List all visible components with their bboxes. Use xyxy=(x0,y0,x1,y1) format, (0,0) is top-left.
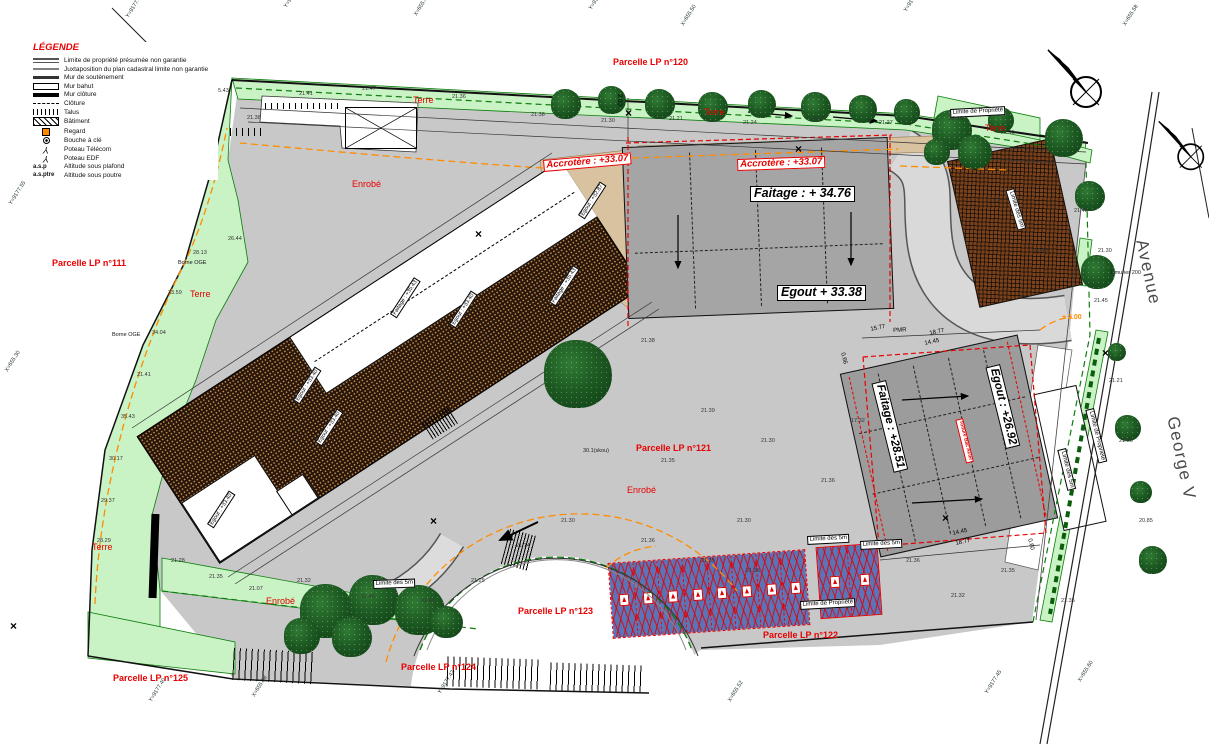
rooflbl-label: Faitage : +35.43 xyxy=(390,277,421,318)
coords-label: X=655.60 xyxy=(1077,660,1095,683)
elev-label: 21.36 xyxy=(906,558,920,564)
elev-label: 21.35 xyxy=(701,558,715,564)
elev-label: 22.15 xyxy=(1001,130,1015,136)
elev-label: 21.36 xyxy=(641,538,655,544)
elev-label: 21.25 xyxy=(471,578,485,584)
legend-label: Limite de propriété présumée non garanti… xyxy=(64,57,187,64)
redrot-label: Toiture Bac Acier xyxy=(956,418,974,463)
elev-label: 21.21 xyxy=(1109,378,1123,384)
rooflbl-label: Egout : +33.40 xyxy=(293,367,322,405)
legend-label: Mur clôture xyxy=(64,91,97,98)
rooflbl-label: Egout : +32.87 xyxy=(578,182,607,220)
elev-label: 29.37 xyxy=(101,498,115,504)
rooflbl-label: Egout : +33.40 xyxy=(449,291,478,329)
crosses-label: × xyxy=(942,512,949,525)
crosses-label: × xyxy=(10,620,17,633)
elev-label: 28.29 xyxy=(97,538,111,544)
elev-label: 21.41 xyxy=(299,91,313,97)
limites-label: Limite des 5m xyxy=(860,539,903,550)
acrotere-label: Accrotère : +33.07 xyxy=(543,152,632,172)
enrobe-label: Enrobé xyxy=(266,597,295,607)
coords-label: X=655.38 xyxy=(251,675,269,698)
coords-label: Y=9177.55 xyxy=(8,180,27,206)
coords-label: Y=9177.45 xyxy=(984,669,1003,695)
terre-label: Terre xyxy=(190,290,211,300)
legend-label: Mur de soutènement xyxy=(64,74,124,81)
regard-icon xyxy=(33,128,59,136)
parcels-label: Parcelle LP n°123 xyxy=(518,607,593,617)
mur-sout-icon xyxy=(33,76,59,79)
enrobe-label: Enrobé xyxy=(627,486,656,496)
elev-label: 21.40 xyxy=(361,594,375,600)
legend-item: Mur bahut xyxy=(33,83,218,90)
coords-label: Y=9177.66 xyxy=(125,0,144,19)
legend-items: Limite de propriété présumée non garanti… xyxy=(33,57,218,179)
elev-label: 21.07 xyxy=(249,586,263,592)
crosses-label: × xyxy=(795,143,802,156)
elev-label: 33.59 xyxy=(168,290,182,296)
elev-label: 21.45 xyxy=(1034,248,1048,254)
elev-label: 21.47 xyxy=(362,86,376,92)
altitudes-label: Faitage : + 34.76 xyxy=(750,186,855,202)
coords-label: X=655.50 xyxy=(680,4,698,27)
dims-label: PMR xyxy=(893,327,907,334)
elev-label: 21.38 xyxy=(531,112,545,118)
dims-label: 15.77 xyxy=(870,324,886,334)
elev-label: 21.27 xyxy=(879,120,893,126)
legend-label: Talus xyxy=(64,109,79,116)
elev-label: 21.35 xyxy=(1001,568,1015,574)
elev-label: 21.28 xyxy=(171,558,185,564)
dims-label: 0.66 xyxy=(839,352,848,365)
coords-label: X=655.42 xyxy=(413,0,431,17)
elev-label: 21.41 xyxy=(137,372,151,378)
coords-label: Y=9177.74 xyxy=(903,0,922,13)
elev-label: 21.36 xyxy=(746,568,760,574)
elev-label: 21.38 xyxy=(641,338,655,344)
mur-cloture-icon xyxy=(33,93,59,98)
enrobe-label: Enrobé xyxy=(352,180,381,190)
legend-item: Regard xyxy=(33,128,218,136)
legend-label: Mur bahut xyxy=(64,83,93,90)
elev-label: 21.14 xyxy=(516,543,530,549)
elev-label: 21.43 xyxy=(421,598,435,604)
coords-label: X=655.52 xyxy=(727,680,745,703)
batiment-icon xyxy=(33,117,59,126)
legend-label: Juxtaposition du plan cadastral limite n… xyxy=(64,66,208,73)
legend-item: Mur clôture xyxy=(33,91,218,98)
altitudes_rot-label: Faitage : +28.51 xyxy=(872,380,908,473)
legend-item: Talus xyxy=(33,109,218,116)
orangelbl-label: + 2.00 xyxy=(1062,314,1082,322)
dims-label: 0.60 xyxy=(1026,538,1035,551)
elev-label: 21.30 xyxy=(761,438,775,444)
limites-label: Limite de Propriété xyxy=(800,598,856,609)
legend-label: Poteau Télécom xyxy=(64,146,111,153)
altitudes_rot-label: Egout : +26.92 xyxy=(986,364,1021,449)
elev-label: 21.27 xyxy=(813,116,827,122)
elev-label: 21.35 xyxy=(1061,598,1075,604)
dims-label: 14.45 xyxy=(924,338,940,348)
elev-label: 21.30 xyxy=(601,118,615,124)
legend-label: Altitude sous poutre xyxy=(64,172,121,179)
elev-label: 21.35 xyxy=(661,458,675,464)
lim-prop-icon xyxy=(33,57,59,64)
tiny-label: 30.1(skou) xyxy=(583,448,609,454)
cloture-icon xyxy=(33,103,59,104)
terre-label: Terre xyxy=(413,96,434,106)
rooflbl-label: Egout : +33.40 xyxy=(207,491,236,529)
elev-label: 21.36 xyxy=(452,94,466,100)
coords-label: X=655.30 xyxy=(4,350,22,373)
legend-item: a.s.ptreAltitude sous poutre xyxy=(33,172,218,179)
poteau-icon: Y xyxy=(33,146,59,153)
coords-label: X=655.58 xyxy=(1122,4,1140,27)
legend-item: Juxtaposition du plan cadastral limite n… xyxy=(33,66,218,73)
legend-item: Bouche à clé xyxy=(33,137,218,144)
parcels-label: Parcelle LP n°122 xyxy=(763,631,838,641)
street-label: George V xyxy=(1163,415,1199,502)
coords-label: Y=9177.70 xyxy=(588,0,607,11)
coords-label: Y=9177.42 xyxy=(437,669,456,695)
elev-label: 30.17 xyxy=(109,456,123,462)
legend-abbrev: a.s.p xyxy=(33,164,59,170)
coords-label: Y=9177.68 xyxy=(283,0,302,9)
legend-label: Regard xyxy=(64,128,85,135)
elev-label: 26.44 xyxy=(228,236,242,242)
rooflbl-label: Faitage : +35.43 xyxy=(549,265,580,306)
legend-label: Poteau EDF xyxy=(64,155,99,162)
limites-label: Limite des 5m xyxy=(807,534,850,545)
legend: LÉGENDE Limite de propriété présumée non… xyxy=(33,42,218,180)
legend-label: Bâtiment xyxy=(64,118,90,125)
elev-label: 35.43 xyxy=(121,414,135,420)
mur-bahut-icon xyxy=(33,83,59,90)
elev-label: 21.32 xyxy=(951,593,965,599)
elev-label: 21.30 xyxy=(1119,438,1133,444)
elev-label: 21.48 xyxy=(1074,208,1088,214)
limites-label: Limite des 5m xyxy=(1006,188,1027,231)
dims-label: 2.00 xyxy=(615,94,622,106)
elev-label: 20.85 xyxy=(1139,518,1153,524)
elev-label: 21.21 xyxy=(669,116,683,122)
crosses-label: × xyxy=(1102,347,1109,360)
legend-item: Mur de soutènement xyxy=(33,74,218,81)
elev-label: 21.24 xyxy=(743,120,757,126)
legend-item: YPoteau EDF xyxy=(33,155,218,162)
parcels-label: Parcelle LP n°124 xyxy=(401,663,476,673)
tiny-label: 1 murier 200 xyxy=(1110,270,1141,276)
dims-label: 14.45 xyxy=(952,528,968,538)
limites-label: Limite des 5m xyxy=(373,579,416,589)
terre-label: Terre xyxy=(704,108,725,118)
legend-item: Limite de propriété présumée non garanti… xyxy=(33,57,218,64)
parcels-label: Parcelle LP n°111 xyxy=(52,259,126,269)
parcels-label: Parcelle LP n°120 xyxy=(613,58,688,68)
legend-abbrev: a.s.ptre xyxy=(33,172,59,178)
legend-label: Clôture xyxy=(64,100,85,107)
terre-label: Terre xyxy=(92,543,113,553)
poteau-icon: Y xyxy=(33,155,59,162)
juxta-icon xyxy=(33,68,59,70)
site-plan: LÉGENDE Limite de propriété présumée non… xyxy=(0,0,1209,754)
elev-label: 21.45 xyxy=(1094,298,1108,304)
rooflbl-label: Egout : +33.40 xyxy=(315,409,344,447)
dims-label: 18.77 xyxy=(955,538,971,548)
elev-label: 27.77 xyxy=(989,198,1003,204)
bouche-icon xyxy=(33,137,59,144)
legend-item: Clôture xyxy=(33,100,218,107)
elev-label: 21.30 xyxy=(561,518,575,524)
elev-label: 21.38 xyxy=(247,115,261,121)
borne-label: Borne OGE xyxy=(112,332,140,338)
legend-label: Bouche à clé xyxy=(64,137,102,144)
legend-title: LÉGENDE xyxy=(33,42,218,53)
crosses-label: × xyxy=(625,107,632,120)
elev-label: 21.35 xyxy=(209,574,223,580)
limites-label: Limite de Propriété xyxy=(1086,408,1108,464)
limites-label: Limite des 5m xyxy=(1058,448,1077,491)
dims-label: 18.77 xyxy=(929,328,945,338)
crosses-label: × xyxy=(430,515,437,528)
elev-label: 34.04 xyxy=(152,330,166,336)
elev-label: 28.13 xyxy=(193,250,207,256)
elev-label: 21.39 xyxy=(701,408,715,414)
legend-label: Altitude sous plafond xyxy=(64,163,124,170)
legend-item: Bâtiment xyxy=(33,117,218,126)
borne-label: Borne OGE xyxy=(178,260,206,266)
parcels-label: Parcelle LP n°125 xyxy=(113,674,188,684)
parcels-label: Parcelle LP n°121 xyxy=(636,444,711,454)
crosses-label: × xyxy=(475,228,482,241)
altitudes-label: Egout + 33.38 xyxy=(777,285,866,301)
acrotere-label: Accrotère : +33.07 xyxy=(737,156,826,172)
elev-label: 21.32 xyxy=(297,578,311,584)
elev-label: 21.30 xyxy=(737,518,751,524)
elev-label: 21.30 xyxy=(1098,248,1112,254)
legend-item: a.s.pAltitude sous plafond xyxy=(33,163,218,170)
elev-label: 17.32 xyxy=(851,418,865,424)
talus-icon xyxy=(33,109,59,115)
elev-label: 22.10 xyxy=(949,116,963,122)
legend-item: YPoteau Télécom xyxy=(33,146,218,153)
elev-label: 21.36 xyxy=(821,478,835,484)
